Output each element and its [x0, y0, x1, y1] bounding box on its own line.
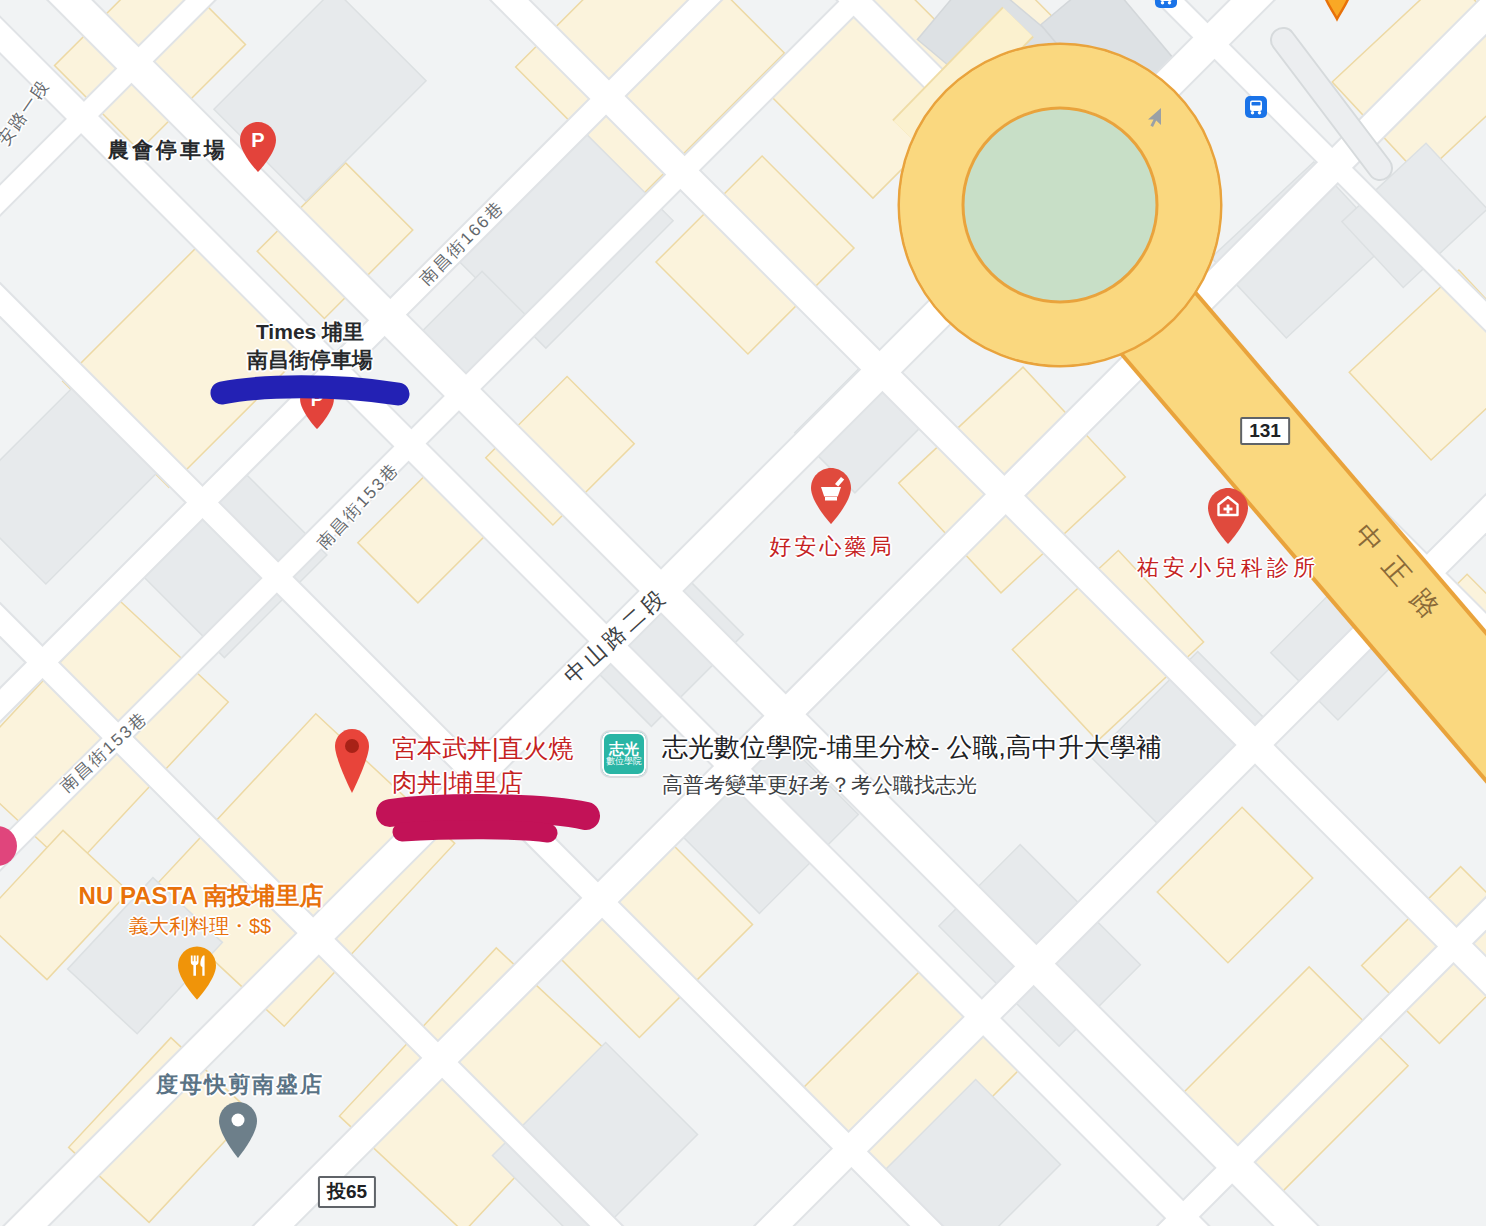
farmers-parking-label[interactable]: 農會停車場: [108, 136, 228, 164]
clinic-pin-icon[interactable]: [1208, 488, 1248, 544]
svg-text:P: P: [311, 389, 324, 410]
ad-subtitle[interactable]: 高普考變革更好考？考公職找志光: [662, 771, 1186, 799]
zhiguang-logo-icon[interactable]: 志光 數位學院: [600, 730, 648, 778]
bus-stop-icon[interactable]: [1245, 96, 1267, 118]
parking-pin-icon[interactable]: P: [240, 122, 276, 172]
pharmacy-pin-icon[interactable]: [811, 468, 851, 524]
miyamoto-pin-icon[interactable]: [335, 729, 369, 793]
map-canvas[interactable]: 安路一段 南昌街166巷 南昌街153巷 南昌街153巷 中山路二段 中正路 1…: [0, 0, 1486, 1226]
miyamoto-label[interactable]: 宮本武丼|直火燒 肉丼|埔里店: [392, 731, 574, 799]
bus-stop-icon-partial[interactable]: [1155, 0, 1177, 8]
roundabout: [899, 44, 1221, 366]
route-badge-tou65: 投65: [318, 1176, 376, 1208]
ad-title[interactable]: 志光數位學院-埔里分校- 公職,高中升大學補: [662, 730, 1186, 765]
times-parking-label[interactable]: Times 埔里 南昌街停車場: [247, 318, 373, 374]
nu-pasta-subtitle[interactable]: 義大利料理・$$: [129, 913, 271, 940]
clinic-label[interactable]: 祐安小兒科診所: [1137, 553, 1319, 583]
ad-zhiguang[interactable]: 志光 數位學院 志光數位學院-埔里分校- 公職,高中升大學補 高普考變革更好考？…: [600, 730, 1186, 799]
route-badge-131: 131: [1240, 417, 1290, 445]
map-background: [0, 0, 1486, 1226]
svg-text:P: P: [251, 129, 264, 151]
pharmacy-label[interactable]: 好安心藥局: [770, 532, 895, 562]
restaurant-pin-icon[interactable]: [178, 946, 216, 1000]
nu-pasta-label[interactable]: NU PASTA 南投埔里店: [79, 880, 324, 912]
haircut-pin-icon[interactable]: [219, 1102, 257, 1158]
times-parking-pin-icon[interactable]: P: [300, 382, 334, 429]
haircut-label[interactable]: 度母快剪南盛店: [156, 1070, 324, 1100]
